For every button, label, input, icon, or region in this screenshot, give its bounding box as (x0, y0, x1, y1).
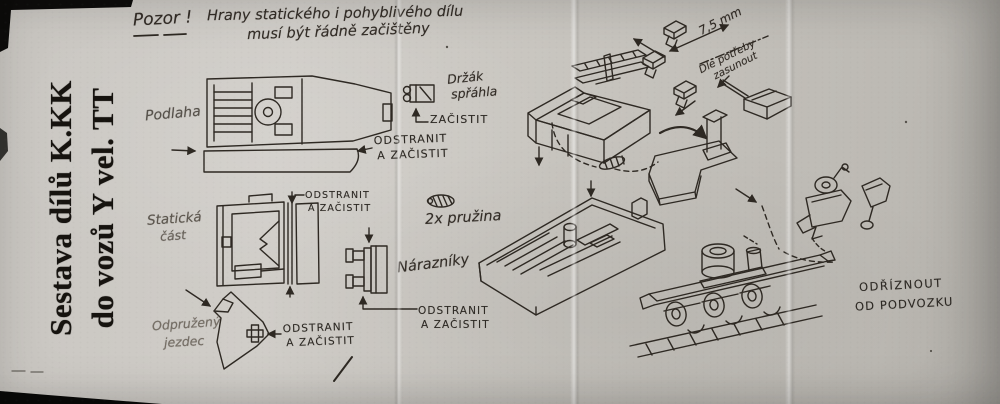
floor-3d-drawing (479, 198, 665, 315)
floor-top-view-drawing (204, 76, 392, 172)
arrow-remove-static-top (292, 192, 304, 203)
title-line-1: Sestava dílů K.KK (40, 58, 82, 358)
note-holder-line2: spřáhla (451, 83, 498, 101)
note-line: A ZAČISTIT (377, 146, 449, 163)
movable-arm-drawing (214, 292, 269, 369)
coupler-holder-drawing (404, 85, 435, 102)
arrow-curved-bold (660, 127, 706, 138)
title-line-2: do vozů Y vel. TT (82, 58, 124, 358)
note-remove-static: ODSTRANIT A ZAČISTIT (305, 189, 371, 215)
note-clean: ZAČISTIT (430, 113, 488, 126)
note-remove-buffers: ODSTRANIT A ZAČISTIT (418, 304, 490, 332)
note-line: A ZAČISTIT (421, 318, 490, 332)
sprue-cross (252, 325, 259, 342)
label-static-part-line2: část (160, 227, 187, 244)
diagram-line-art (0, 0, 1000, 404)
coupling-cut-drawing (797, 164, 890, 239)
arrow-clean-holder (416, 109, 428, 122)
scanned-instruction-sheet: Sestava dílů K.KK do vozů Y vel. TT Pozo… (0, 0, 1000, 404)
sprue-bar (296, 203, 319, 284)
arrow-buffer-bottom (363, 297, 417, 309)
insert-part-drawing (720, 80, 791, 119)
bracket-part (649, 141, 737, 199)
spring-drawing (428, 195, 455, 207)
note-line: A ZAČISTIT (286, 334, 355, 350)
note-line: A ZAČISTIT (308, 202, 371, 215)
arrow-podlaha (172, 150, 195, 151)
buffer-beam-drawing (346, 246, 387, 293)
page-title-vertical: Sestava dílů K.KK do vozů Y vel. TT (40, 58, 130, 358)
static-part-top-view-drawing (217, 194, 319, 286)
pen-mark (334, 357, 352, 381)
note-remove-floor: ODSTRANIT A ZAČISTIT (373, 131, 448, 164)
note-line: ODSTRANIT (418, 304, 490, 318)
label-slider-line2: jezdec (164, 333, 205, 350)
sprue-runner (204, 149, 358, 172)
note-remove-arm: ODSTRANIT A ZAČISTIT (283, 320, 356, 350)
arrow-remove-floor-sprue (358, 148, 372, 151)
warning-heading: Pozor ! (133, 7, 193, 30)
arrow-slider-leader (186, 290, 210, 306)
pozor-underline (134, 34, 186, 36)
track-rails (630, 305, 822, 357)
buffer-heads-drawing (643, 21, 696, 108)
sprue-cross (247, 330, 263, 337)
bogie-3d-drawing (630, 244, 835, 357)
arrow-bogie (736, 189, 756, 202)
note-line: ODSTRANIT (305, 189, 371, 202)
